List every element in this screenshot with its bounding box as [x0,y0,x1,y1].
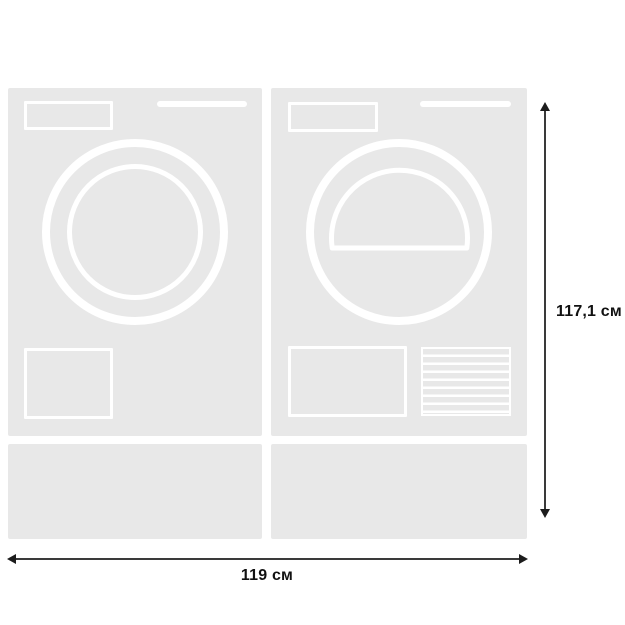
dryer-display-bar [420,101,511,107]
washer-control-panel-outline [24,101,113,130]
dryer-vent-grille-icon [421,347,511,416]
arrow-left-icon [7,554,16,564]
washer-door-window-icon [67,164,203,300]
dryer-filter-drawer-outline [288,346,407,417]
arrow-right-icon [519,554,528,564]
height-dimension-label: 117,1 см [556,303,622,321]
arrow-down-icon [540,509,550,518]
appliance-dimensions-diagram: 117,1 см 119 см [0,0,625,625]
height-dimension-line [544,110,546,510]
width-dimension-label: 119 см [197,567,337,585]
washer-display-bar [157,101,247,107]
arrow-up-icon [540,102,550,111]
washer-detergent-drawer-outline [24,348,113,419]
washer-pedestal [8,444,262,539]
dryer-control-panel-outline [288,102,378,132]
dryer-pedestal [271,444,527,539]
dryer-door-ring-icon [306,139,492,325]
width-dimension-line [16,558,519,560]
